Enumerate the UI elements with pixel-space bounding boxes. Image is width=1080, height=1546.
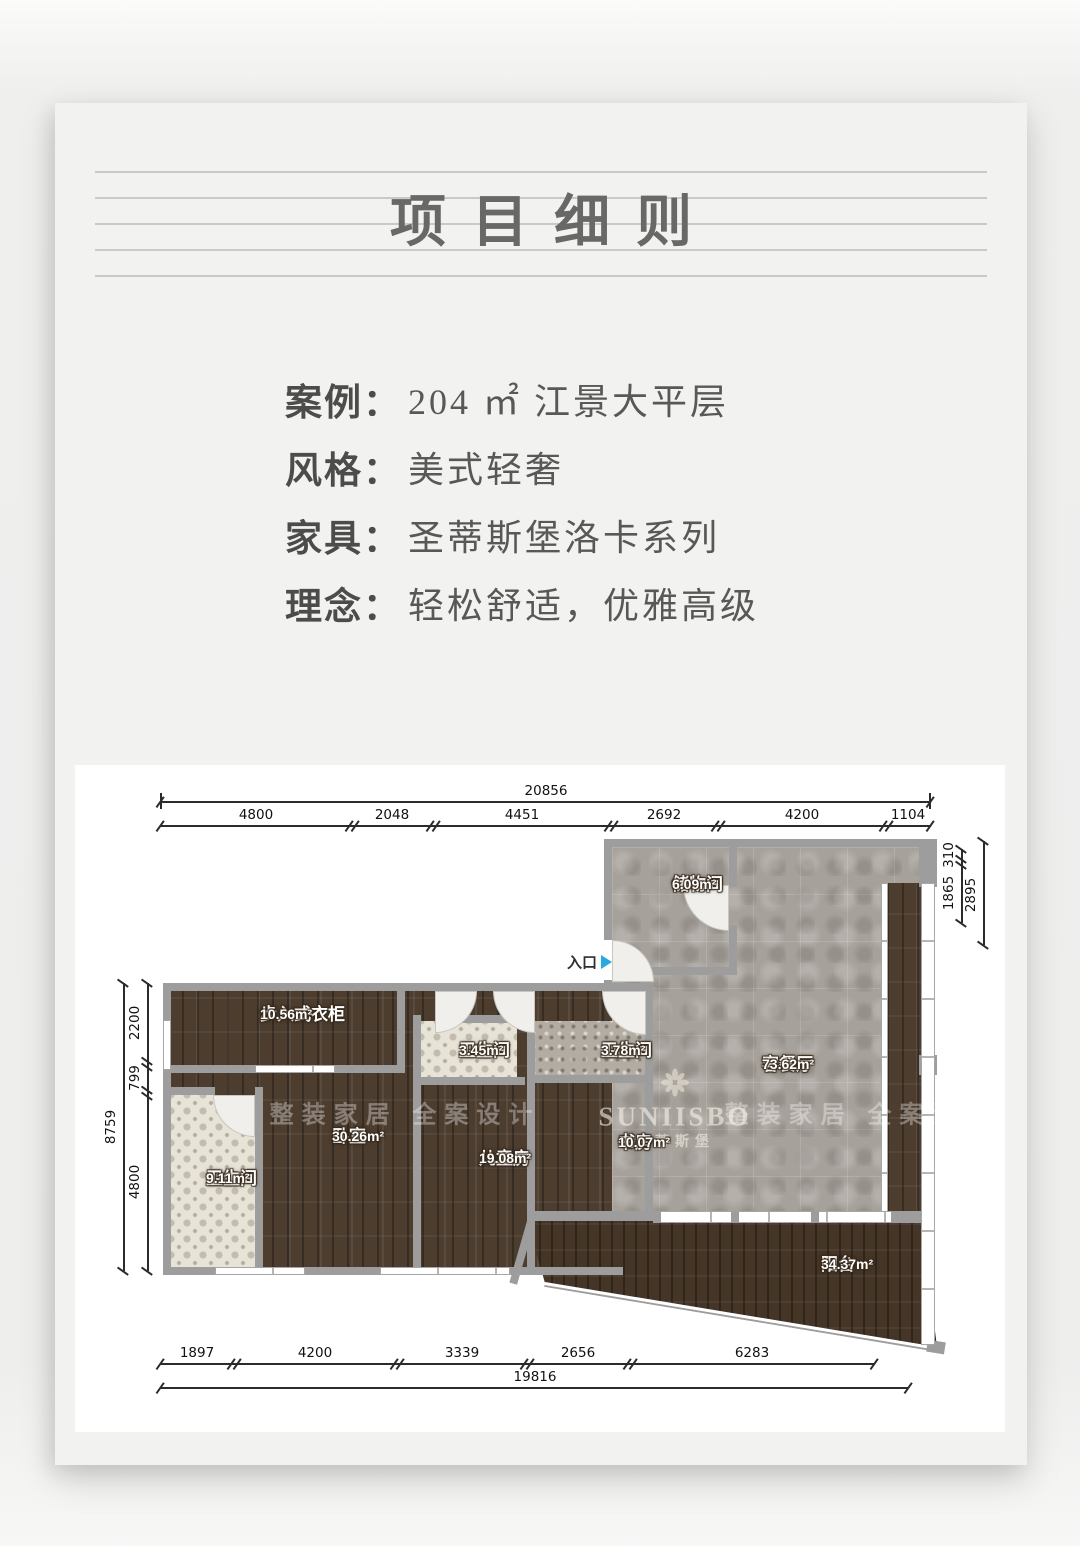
info-label: 家具： [285, 508, 402, 562]
window-closet-bottom [255, 1065, 335, 1073]
watermark-brand: SUNIISBO [598, 1102, 751, 1133]
info-label: 风格： [285, 440, 402, 494]
dim-value: 8759 [103, 1110, 119, 1144]
dim-value: 6283 [735, 1345, 769, 1361]
floor-living [612, 847, 921, 1217]
dim-value: 4451 [505, 807, 539, 823]
info-row-concept: 理念： 轻松舒适，优雅高级 [285, 569, 759, 637]
entry-label: 入口 [567, 952, 597, 973]
dim-value: 4800 [239, 807, 273, 823]
floor-plan: 整装家居 全案设计 整装家居 全案设计 SUNIISBO 圣蒂斯堡 储物间6.0… [75, 765, 1005, 1432]
dim-value: 4200 [298, 1345, 332, 1361]
info-row-case: 案例： 204 ㎡ 江景大平层 [285, 365, 759, 433]
window-living-slider [881, 883, 888, 1217]
dim-value: 20856 [525, 783, 568, 799]
watermark-slogan-left: 整装家居 全案设计 [270, 1095, 541, 1130]
window-living-bottom [653, 1211, 921, 1223]
window-bottom-2 [380, 1267, 510, 1275]
window-bottom-1 [215, 1267, 305, 1275]
dim-value: 2200 [127, 1006, 143, 1040]
info-value: 美式轻奢 [408, 441, 564, 493]
info-value: 圣蒂斯堡洛卡系列 [408, 509, 720, 561]
dim-value: 2048 [375, 807, 409, 823]
info-label: 案例： [285, 372, 402, 426]
page-title: 项目细则 [55, 163, 1027, 283]
dim-value: 799 [127, 1065, 143, 1091]
info-value: 204 ㎡ 江景大平层 [408, 373, 729, 425]
dim-value: 2656 [561, 1345, 595, 1361]
dim-value: 4200 [785, 807, 819, 823]
dim-value: 19816 [514, 1369, 557, 1385]
dim-value: 2692 [647, 807, 681, 823]
dim-value: 2895 [963, 878, 979, 912]
dim-value: 1104 [891, 807, 925, 823]
dim-value: 4800 [127, 1165, 143, 1199]
floor-side-balcony [887, 883, 921, 1221]
dim-value: 1897 [180, 1345, 214, 1361]
window-closet-left [163, 1020, 171, 1070]
watermark-slogan-right: 整装家居 全案设计 [725, 1095, 996, 1130]
dim-value: 1865 [941, 876, 957, 910]
info-row-furniture: 家具： 圣蒂斯堡洛卡系列 [285, 501, 759, 569]
poster-card: 项目细则 案例： 204 ㎡ 江景大平层 风格： 美式轻奢 家具： 圣蒂斯堡洛卡… [55, 103, 1027, 1465]
entry-arrow-icon [601, 955, 612, 969]
info-value: 轻松舒适，优雅高级 [408, 577, 759, 629]
info-row-style: 风格： 美式轻奢 [285, 433, 759, 501]
info-label: 理念： [285, 576, 402, 630]
dim-value: 310 [941, 842, 957, 868]
dim-value: 3339 [445, 1345, 479, 1361]
watermark-flower-icon [660, 1068, 690, 1103]
project-info: 案例： 204 ㎡ 江景大平层 风格： 美式轻奢 家具： 圣蒂斯堡洛卡系列 理念… [285, 365, 759, 637]
